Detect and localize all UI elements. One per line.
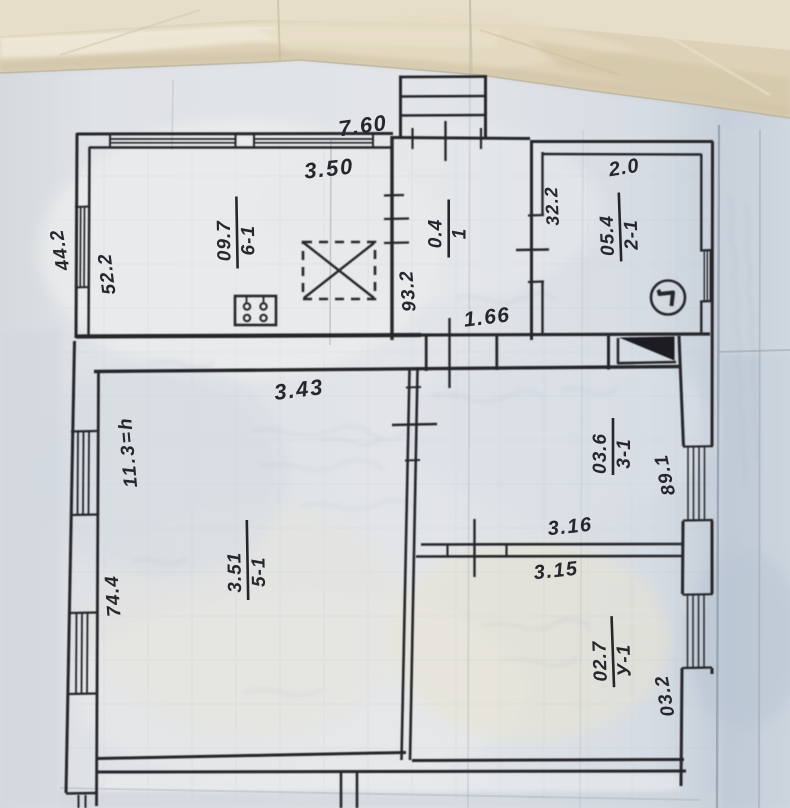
svg-text:32.2: 32.2 <box>541 186 563 227</box>
svg-text:У-1: У-1 <box>614 644 636 677</box>
svg-text:03.6: 03.6 <box>590 433 611 474</box>
svg-text:5-1: 5-1 <box>248 556 270 587</box>
svg-text:1: 1 <box>450 228 471 240</box>
svg-text:3.51: 3.51 <box>224 552 246 593</box>
svg-text:3.15: 3.15 <box>533 558 580 585</box>
svg-text:09.7: 09.7 <box>214 220 236 262</box>
svg-text:3-1: 3-1 <box>614 438 635 468</box>
svg-text:05.4: 05.4 <box>597 215 619 257</box>
svg-text:2-1: 2-1 <box>621 219 643 251</box>
svg-text:3.50: 3.50 <box>303 153 355 183</box>
svg-text:3.16: 3.16 <box>547 514 594 541</box>
svg-text:6-1: 6-1 <box>238 225 260 256</box>
svg-text:93.2: 93.2 <box>396 269 421 312</box>
svg-text:74.4: 74.4 <box>102 574 126 617</box>
svg-text:0.4: 0.4 <box>426 219 447 248</box>
svg-text:02.7: 02.7 <box>589 640 611 682</box>
